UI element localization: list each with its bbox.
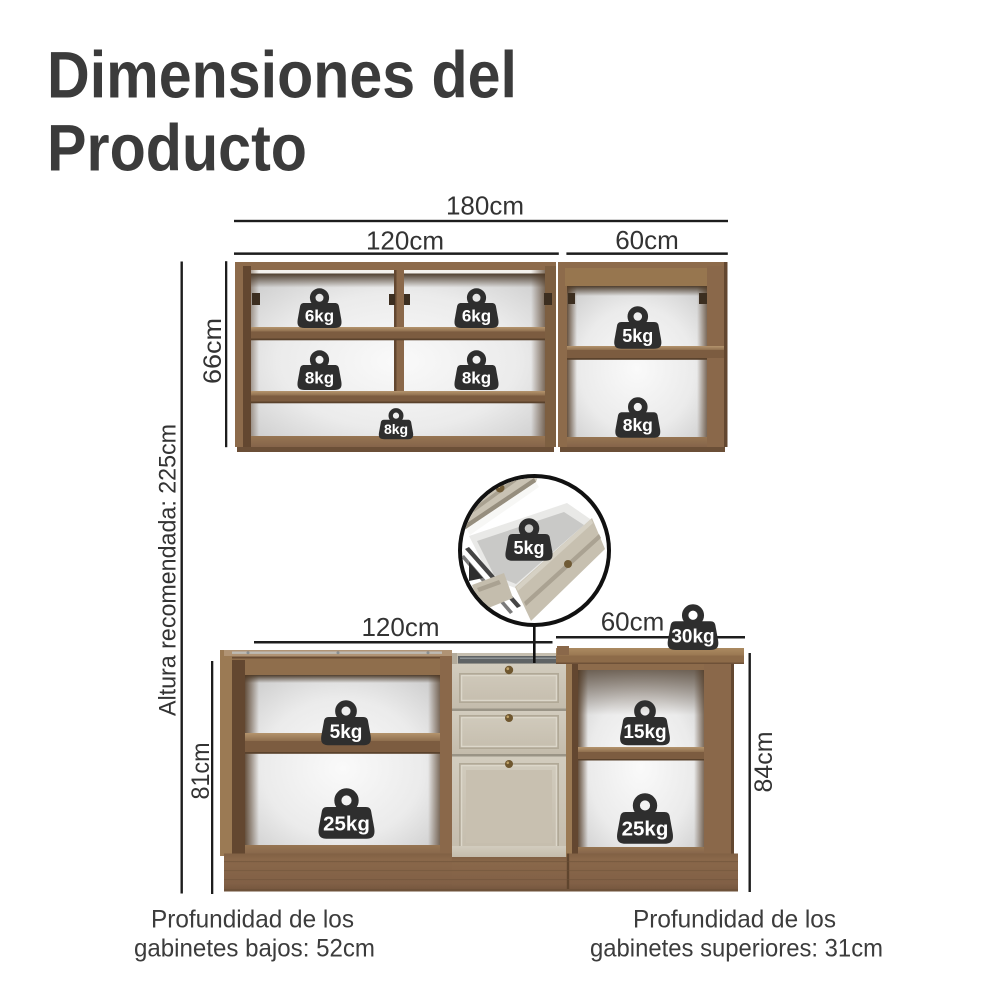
svg-text:6kg: 6kg: [462, 307, 491, 326]
svg-text:15kg: 15kg: [623, 722, 666, 743]
svg-text:Profundidad de los: Profundidad de los: [151, 906, 354, 934]
svg-text:5kg: 5kg: [330, 722, 363, 743]
svg-text:8kg: 8kg: [623, 415, 653, 435]
svg-text:120cm: 120cm: [361, 612, 439, 642]
svg-text:8kg: 8kg: [305, 369, 334, 388]
svg-text:Profundidad de los: Profundidad de los: [633, 906, 836, 934]
svg-text:60cm: 60cm: [601, 607, 665, 637]
svg-text:8kg: 8kg: [384, 421, 408, 437]
svg-text:25kg: 25kg: [323, 813, 370, 836]
svg-text:8kg: 8kg: [462, 369, 491, 388]
svg-text:6kg: 6kg: [305, 307, 334, 326]
svg-text:25kg: 25kg: [622, 818, 669, 841]
svg-text:Dimensiones del: Dimensiones del: [47, 38, 517, 112]
svg-text:81cm: 81cm: [187, 743, 215, 800]
svg-text:66cm: 66cm: [199, 318, 227, 384]
svg-text:Altura recomendada: 225cm: Altura recomendada: 225cm: [155, 424, 182, 716]
svg-text:60cm: 60cm: [615, 225, 679, 255]
svg-text:84cm: 84cm: [750, 732, 778, 793]
svg-text:Producto: Producto: [47, 111, 307, 185]
svg-text:5kg: 5kg: [513, 538, 544, 558]
svg-text:30kg: 30kg: [671, 627, 714, 648]
svg-text:gabinetes bajos: 52cm: gabinetes bajos: 52cm: [134, 935, 375, 963]
svg-text:gabinetes superiores: 31cm: gabinetes superiores: 31cm: [590, 935, 883, 963]
svg-text:180cm: 180cm: [446, 191, 524, 221]
svg-text:5kg: 5kg: [622, 326, 653, 346]
svg-text:120cm: 120cm: [366, 226, 444, 256]
